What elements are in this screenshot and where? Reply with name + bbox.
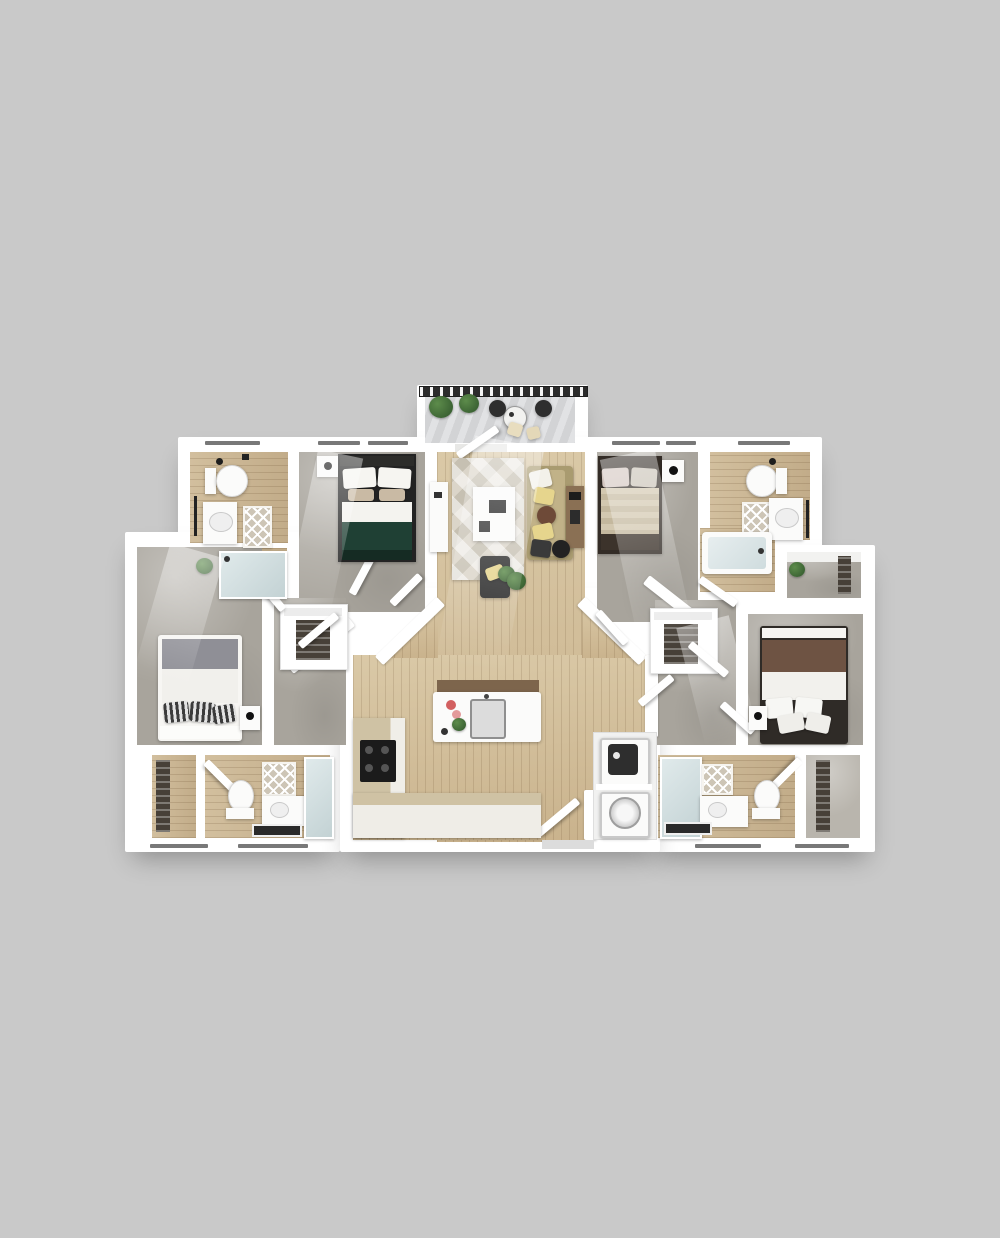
tablet xyxy=(479,521,490,532)
toilet xyxy=(216,465,248,497)
toilet-flush-plate xyxy=(216,458,223,465)
bed-footer xyxy=(342,550,412,560)
window xyxy=(666,441,696,445)
toilet xyxy=(746,465,778,497)
burner xyxy=(381,746,389,754)
burner xyxy=(365,764,373,772)
balcony-chair-2 xyxy=(535,400,552,417)
bed-striped-duvet xyxy=(601,488,659,536)
washer-door xyxy=(609,797,641,829)
burner xyxy=(381,764,389,772)
balcony-chair-1 xyxy=(489,400,506,417)
bath-mat xyxy=(702,764,733,795)
kitchen-counter-bottom xyxy=(353,793,541,838)
glass-shower xyxy=(304,757,334,839)
window xyxy=(612,441,660,445)
bed-pillow xyxy=(342,467,376,489)
bed-green-duvet xyxy=(342,522,412,552)
sink xyxy=(708,802,727,818)
bed-pillow xyxy=(377,467,411,489)
toilet-tank xyxy=(752,808,780,819)
desk-item xyxy=(569,492,581,500)
island-sink xyxy=(470,699,506,739)
closet-right-shelf xyxy=(654,612,712,620)
window xyxy=(738,441,790,445)
window xyxy=(368,441,408,445)
window xyxy=(695,844,761,848)
window xyxy=(795,844,849,848)
dark-bath-rug xyxy=(664,822,712,835)
bed-headboard xyxy=(340,456,414,466)
bed-brown-blanket xyxy=(762,640,846,674)
bed-accent-pillow xyxy=(379,489,405,501)
console-item xyxy=(434,492,442,498)
towel-ladder xyxy=(194,496,197,536)
alarm-clock xyxy=(669,466,678,475)
room-closet-bottom-right xyxy=(806,755,860,838)
island-faucet xyxy=(484,694,489,699)
window xyxy=(205,441,260,445)
balcony-plant-2 xyxy=(459,394,479,413)
sink xyxy=(775,508,799,528)
bed-striped-pillow xyxy=(212,703,237,724)
flower-bouquet xyxy=(446,700,456,710)
table-lamp xyxy=(246,712,254,720)
window xyxy=(318,441,360,445)
closet-clothes xyxy=(838,556,851,594)
bed-pillow xyxy=(630,467,657,488)
bed-footer xyxy=(601,534,659,550)
bed-headboard xyxy=(160,726,240,739)
bed-duvet-fold xyxy=(342,502,412,524)
bathtub-basin xyxy=(708,537,766,569)
entry-threshold xyxy=(542,840,594,849)
balcony-railing xyxy=(419,386,588,397)
window xyxy=(238,844,308,848)
desk-item xyxy=(570,510,580,524)
closet-plant xyxy=(789,562,805,577)
toilet-tank xyxy=(226,808,254,819)
bed-duvet xyxy=(162,669,238,703)
bed-footboard xyxy=(762,628,846,638)
floor-plan-canvas xyxy=(0,0,1000,1238)
tub-faucet xyxy=(758,548,764,554)
sink xyxy=(270,802,289,818)
laundry-shelf xyxy=(596,784,652,790)
bed-duvet xyxy=(762,672,846,700)
closet-shelving xyxy=(156,760,170,832)
desk-chair xyxy=(552,540,570,558)
shower-head xyxy=(224,556,230,562)
towel-ladder xyxy=(806,500,809,538)
bouquet-greens xyxy=(452,718,466,731)
toilet-tank xyxy=(776,468,787,494)
bath-mat xyxy=(243,506,272,548)
balcony-table-item xyxy=(509,412,514,417)
sink xyxy=(209,512,233,532)
work-table xyxy=(473,487,515,541)
table-lamp xyxy=(324,462,332,470)
sofa-pillow-dark xyxy=(530,539,552,559)
balcony-plant-1 xyxy=(429,396,453,418)
hall-plant-left xyxy=(196,558,213,574)
toilet-tank xyxy=(205,468,216,494)
table-lamp xyxy=(754,712,762,720)
bed-accent-pillow xyxy=(348,489,374,501)
toilet-flush-plate xyxy=(769,458,776,465)
closet-shelving xyxy=(816,760,830,832)
toilet-paper-holder xyxy=(242,454,249,460)
bed-gray-blanket xyxy=(162,639,238,671)
bed-pillow xyxy=(602,467,630,487)
island-plate xyxy=(441,728,448,735)
bed-striped-pillow xyxy=(163,701,190,724)
dryer-door-glass xyxy=(613,752,620,759)
apartment-floor-plan xyxy=(0,0,1000,1238)
laptop xyxy=(489,500,506,513)
dark-bath-rug xyxy=(252,824,302,837)
bath-mat xyxy=(262,762,296,796)
dryer-door xyxy=(608,744,638,775)
living-plant xyxy=(507,572,526,590)
window xyxy=(150,844,208,848)
burner xyxy=(365,746,373,754)
sofa-pillow-yellow xyxy=(533,486,555,505)
